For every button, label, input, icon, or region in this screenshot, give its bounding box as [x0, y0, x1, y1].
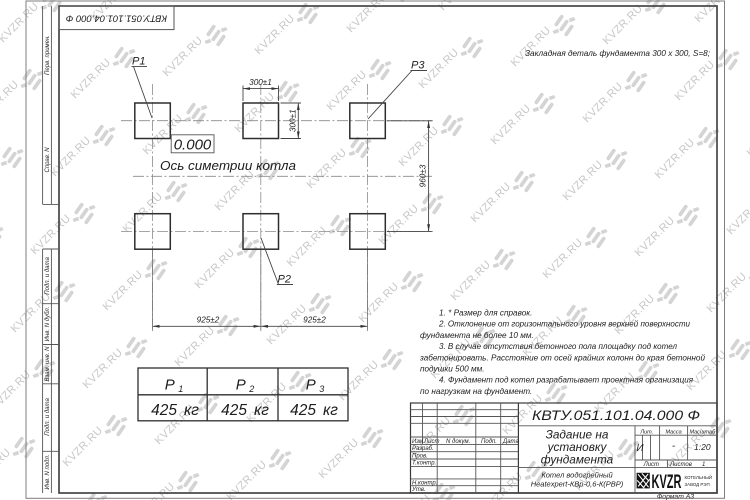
svg-text:KVZR.RU: KVZR.RU [693, 0, 738, 25]
svg-text:300±1: 300±1 [289, 109, 298, 132]
svg-text:KVZR.RU: KVZR.RU [317, 437, 362, 482]
svg-text:KVZR.RU: KVZR.RU [581, 81, 626, 126]
svg-text:KVZR.RU: KVZR.RU [377, 203, 422, 248]
svg-text:P1: P1 [165, 377, 184, 395]
svg-text:425кг: 425кг [290, 402, 338, 419]
svg-text:Разраб.: Разраб. [412, 446, 434, 452]
svg-text:KVZR.RU: KVZR.RU [233, 91, 278, 136]
svg-text:фундамента: фундамента [541, 453, 614, 467]
svg-text:KVZR.RU: KVZR.RU [49, 135, 94, 180]
svg-text:ЗАВОД РЭП: ЗАВОД РЭП [685, 482, 710, 487]
svg-text:N докум.: N докум. [446, 439, 470, 445]
svg-text:Heatexpert-КВр-0,6-К(РВР): Heatexpert-КВр-0,6-К(РВР) [531, 480, 624, 489]
svg-text:KVZR.RU: KVZR.RU [357, 281, 402, 326]
svg-text:KVZR.RU: KVZR.RU [725, 193, 750, 238]
svg-text:KVZR.RU: KVZR.RU [0, 447, 13, 492]
svg-text:КВТУ.051.101.04.000 Ф: КВТУ.051.101.04.000 Ф [532, 407, 700, 423]
svg-text:P2: P2 [278, 274, 291, 286]
svg-text:KVZR.RU: KVZR.RU [193, 247, 238, 292]
svg-text:забетонировать. Расстояние от: забетонировать. Расстояние от осей крайн… [419, 353, 705, 362]
svg-text:KVZR.RU: KVZR.RU [0, 1, 41, 46]
svg-text:Закладная деталь фундамента 3: Закладная деталь фундамента 300 x 300, S… [525, 49, 710, 58]
svg-text:KVZR.RU: KVZR.RU [253, 13, 298, 58]
svg-text:KVZR.RU: KVZR.RU [121, 191, 166, 236]
svg-text:KVZR.RU: KVZR.RU [541, 237, 586, 282]
svg-text:925±2: 925±2 [197, 316, 220, 325]
svg-text:KVZR.RU: KVZR.RU [161, 35, 206, 80]
svg-text:KVZR.RU: KVZR.RU [213, 169, 258, 214]
svg-text:Т.контр.: Т.контр. [412, 461, 436, 467]
svg-text:Лит.: Лит. [639, 429, 653, 435]
svg-text:P1: P1 [132, 56, 145, 68]
svg-text:KVZR.RU: KVZR.RU [705, 271, 750, 316]
svg-text:подушки 500 мм.: подушки 500 мм. [420, 365, 485, 374]
svg-text:KVZR.RU: KVZR.RU [173, 325, 218, 370]
svg-text:Подп.: Подп. [481, 439, 497, 445]
svg-text:Инв. N дубл.: Инв. N дубл. [45, 307, 51, 342]
svg-text:KVZR.RU: KVZR.RU [305, 147, 350, 192]
svg-text:KVZR.RU: KVZR.RU [449, 259, 494, 304]
svg-text:Лист: Лист [423, 439, 439, 445]
svg-text:KVZR.RU: KVZR.RU [601, 3, 646, 48]
svg-text:Пров.: Пров. [412, 453, 428, 459]
svg-text:1. * Размер для справок.: 1. * Размер для справок. [439, 309, 532, 318]
svg-text:KVZR.RU: KVZR.RU [325, 69, 370, 114]
svg-text:3. В случае отсутствия бетонно: 3. В случае отсутствия бетонного пола пл… [439, 342, 677, 351]
svg-text:Инв. N подл.: Инв. N подл. [45, 454, 51, 489]
svg-text:1:20: 1:20 [694, 442, 711, 452]
svg-text:1: 1 [702, 462, 705, 468]
svg-text:KVZR.RU: KVZR.RU [397, 125, 442, 170]
svg-text:KVZR.RU: KVZR.RU [29, 213, 74, 258]
svg-text:KVZR.RU: KVZR.RU [489, 103, 534, 148]
svg-text:KVZR.RU: KVZR.RU [0, 79, 21, 124]
svg-text:KVZR.RU: KVZR.RU [633, 215, 678, 260]
svg-text:Перв. примен.: Перв. примен. [45, 35, 51, 75]
svg-text:Масштаб: Масштаб [689, 429, 716, 435]
svg-text:Подп. и дата: Подп. и дата [45, 398, 51, 436]
svg-text:KVZR.RU: KVZR.RU [61, 425, 106, 470]
svg-text:KVZR.RU: KVZR.RU [673, 59, 718, 104]
svg-text:Подп. и дата: Подп. и дата [45, 257, 51, 295]
svg-text:Н.контр.: Н.контр. [412, 480, 437, 486]
svg-text:KVZR.RU: KVZR.RU [561, 159, 606, 204]
svg-text:2. Отклонение от горизонтально: 2. Отклонение от горизонтального уровня … [438, 320, 690, 329]
svg-text:0.000: 0.000 [174, 136, 212, 153]
svg-text:KVZR.RU: KVZR.RU [133, 481, 178, 500]
svg-text:И: И [636, 443, 644, 454]
svg-text:KVZR.RU: KVZR.RU [101, 269, 146, 314]
svg-text:фундамента не более 10 мм.: фундамента не более 10 мм. [420, 331, 534, 340]
svg-text:-: - [672, 441, 676, 452]
svg-text:Листов: Листов [669, 462, 692, 468]
svg-text:Изм.: Изм. [412, 439, 425, 445]
svg-text:KVZR.RU: KVZR.RU [737, 483, 750, 500]
svg-text:KVZR.RU: KVZR.RU [81, 347, 126, 392]
svg-text:KVZR.RU: KVZR.RU [469, 181, 514, 226]
svg-text:KVZR.RU: KVZR.RU [337, 359, 382, 404]
svg-text:Формат А3: Формат А3 [657, 493, 694, 500]
svg-text:KVZR.RU: KVZR.RU [0, 369, 33, 414]
svg-text:Ось симетрии котла: Ось симетрии котла [160, 158, 296, 173]
svg-text:KVZR: KVZR [652, 472, 682, 493]
svg-text:KVZR.RU: KVZR.RU [69, 57, 114, 102]
svg-text:KVZR.RU: KVZR.RU [613, 293, 658, 338]
svg-text:Котел водогрейный: Котел водогрейный [541, 471, 613, 480]
svg-text:Лист: Лист [643, 462, 659, 468]
svg-text:Взам. инв. N: Взам. инв. N [45, 346, 51, 382]
svg-text:960±3: 960±3 [419, 164, 428, 187]
svg-text:Утв.: Утв. [411, 487, 426, 493]
svg-text:KVZR.RU: KVZR.RU [265, 303, 310, 348]
svg-text:425кг: 425кг [221, 402, 269, 419]
svg-text:P3: P3 [306, 377, 325, 395]
svg-text:P3: P3 [411, 60, 425, 72]
svg-text:925±2: 925±2 [303, 316, 326, 325]
svg-text:4. Фундамент под котел разраба: 4. Фундамент под котел разрабатывает про… [439, 376, 694, 385]
svg-text:KVZR.RU: KVZR.RU [509, 25, 554, 70]
svg-text:P2: P2 [236, 377, 255, 395]
svg-text:Справ. N: Справ. N [45, 147, 51, 173]
svg-text:Дата: Дата [502, 439, 519, 445]
svg-text:KVZR.RU: KVZR.RU [653, 137, 698, 182]
svg-text:по нагрузкам на фундамент.: по нагрузкам на фундамент. [420, 387, 532, 396]
svg-text:425кг: 425кг [151, 402, 199, 419]
svg-text:300±1: 300±1 [249, 78, 272, 87]
svg-text:KVZR.RU: KVZR.RU [745, 115, 750, 160]
svg-text:Масса: Масса [665, 429, 681, 435]
svg-text:КВТУ.051.101.04.000 Ф: КВТУ.051.101.04.000 Ф [65, 12, 167, 23]
svg-text:КОТЕЛЬНЫЙ: КОТЕЛЬНЫЙ [685, 475, 713, 480]
